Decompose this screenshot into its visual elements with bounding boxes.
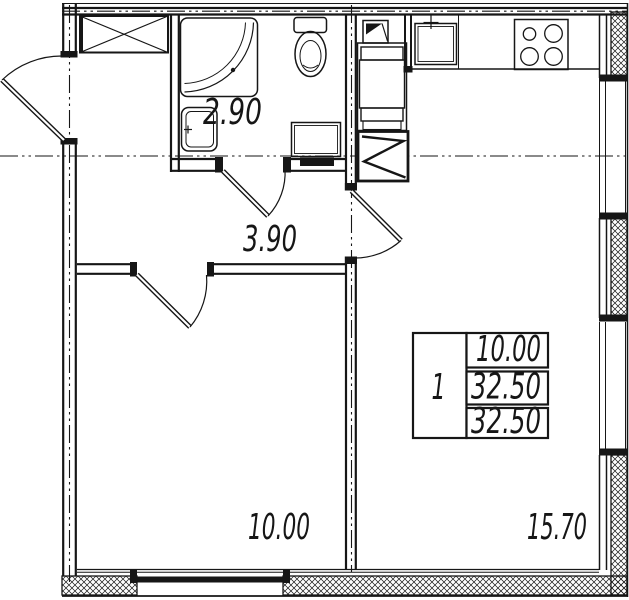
shower-cabin-icon bbox=[181, 18, 258, 97]
washing-machine-icon bbox=[292, 123, 341, 157]
corner-cabinet-icon bbox=[363, 21, 388, 44]
stove-4-burner-icon bbox=[515, 20, 569, 70]
bottom-wall-segment-left bbox=[62, 576, 137, 595]
bedroom-area-label: 10.00 bbox=[248, 507, 310, 548]
bedroom-door-jamb-right bbox=[207, 262, 214, 277]
window-right-top bbox=[600, 81, 626, 213]
window-right-bottom bbox=[600, 322, 626, 449]
room-count-value: 1 bbox=[432, 367, 446, 408]
info-table: 1 10.00 32.50 32.50 bbox=[413, 329, 548, 442]
window-bottom-bedroom bbox=[137, 577, 283, 583]
right-wall-segment-bottom bbox=[611, 455, 627, 595]
kitchen-door-jamb-top bbox=[345, 183, 357, 191]
hallway-area-label: 3.90 bbox=[243, 219, 297, 260]
wall-fill-segment bbox=[300, 158, 334, 167]
bedroom-door-jamb-left bbox=[130, 262, 137, 277]
vent-shaft-icon bbox=[358, 132, 408, 182]
tall-cabinet-icon bbox=[358, 43, 407, 131]
toilet-icon bbox=[294, 18, 327, 77]
bath-door-jamb-left bbox=[215, 157, 223, 173]
kitchen-sink-icon bbox=[415, 16, 457, 65]
kitchen-living-door bbox=[352, 191, 402, 258]
right-wall-segment-top bbox=[611, 12, 627, 78]
axis-lines bbox=[0, 5, 628, 582]
shower-drain bbox=[231, 68, 235, 72]
wardrobe-cross-icon bbox=[80, 15, 168, 53]
right-wall-segment-middle bbox=[611, 218, 627, 318]
floor-plan-page: 1 10.00 32.50 32.50 2.90 3.90 10.00 15.7… bbox=[0, 0, 629, 600]
bottom-wall-segment-right bbox=[283, 576, 627, 595]
living-area-value: 10.00 bbox=[476, 329, 541, 370]
floor-plan-svg: 1 10.00 32.50 32.50 2.90 3.90 10.00 15.7… bbox=[0, 0, 629, 600]
overall-area-value: 32.50 bbox=[471, 401, 541, 442]
bedroom-door bbox=[137, 275, 207, 328]
bathroom-area-label: 2.90 bbox=[203, 92, 262, 133]
entrance-door bbox=[2, 56, 64, 140]
kitchen-living-area-label: 15.70 bbox=[527, 507, 587, 548]
bathroom-door bbox=[223, 169, 285, 216]
bath-door-jamb-right bbox=[283, 157, 291, 173]
